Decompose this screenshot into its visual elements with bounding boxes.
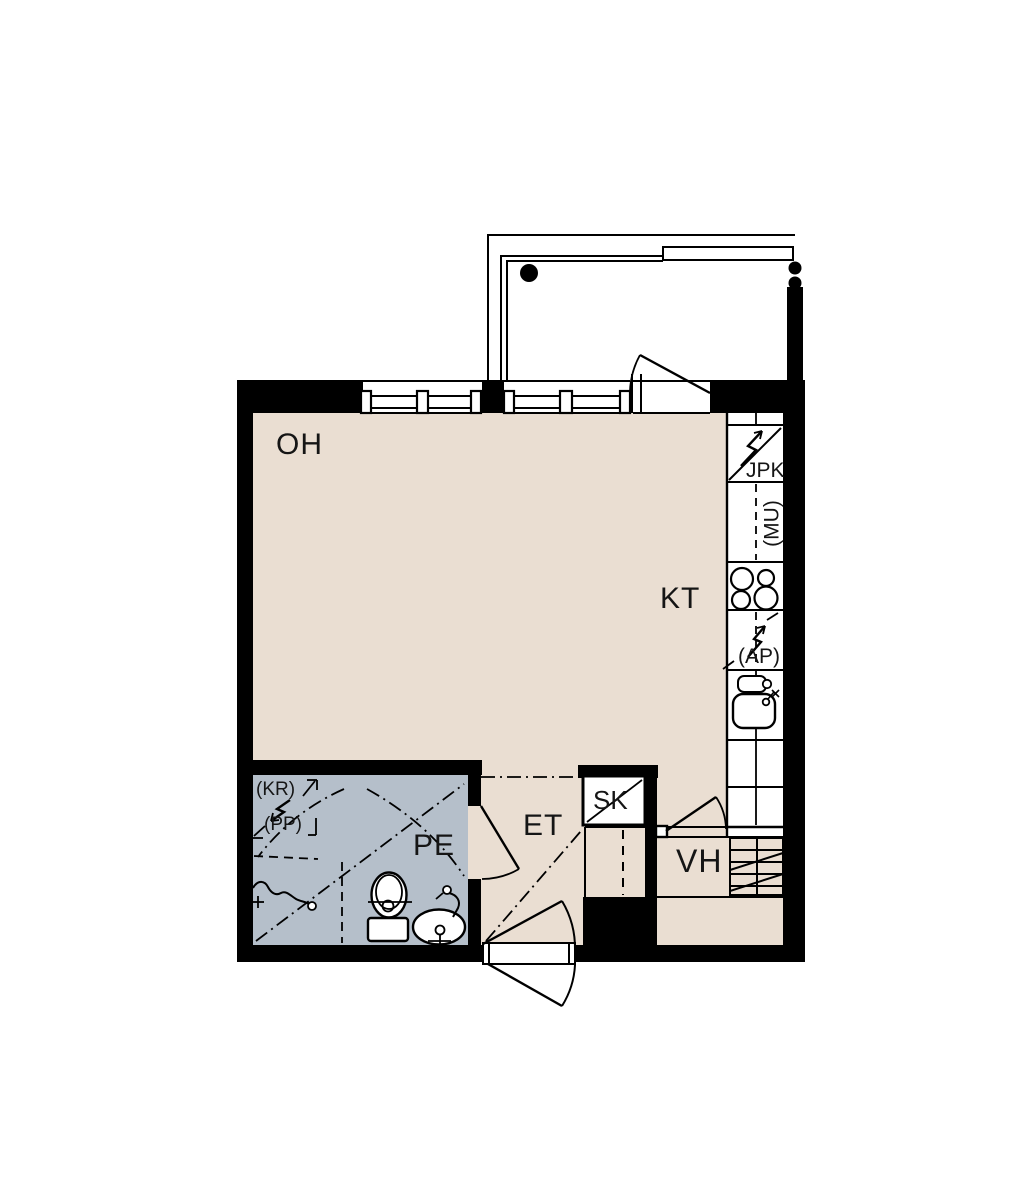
wall-bathroom-right-upper [468,775,481,806]
room-label-bathroom: PE [413,831,455,861]
wall-bottom-right [573,945,805,962]
wall-top-pier-middle [482,380,504,413]
door-leaf [488,964,562,1006]
wall-below-sk [583,897,657,945]
door-swing-arc [562,965,575,1006]
room-label-walk-in-closet: VH [676,845,722,877]
wall-bathroom-top [237,760,482,775]
appliance-label-fridge-freezer: JPK [746,460,785,481]
wall-top-pier-left [237,380,363,413]
appliance-label-dishwasher: (AP) [738,646,780,667]
room-label-living: OH [276,430,323,460]
floor-plan-drawing [0,0,1011,1200]
wall-balcony-side [787,287,803,382]
appliance-label-dryer: (KR) [256,780,295,799]
room-label-cleaning-closet: SK [593,787,628,813]
balcony-post-dot [789,277,802,290]
balcony-door-opening [632,380,710,413]
wall-bathroom-right-lower [468,879,481,945]
balcony-railing-box [663,247,793,260]
threshold [483,943,575,964]
room-label-kitchen: KT [660,584,700,614]
room-label-entry: ET [523,811,563,841]
balcony-column-dot [520,264,538,282]
wall-left [237,380,253,962]
appliance-label-washer: (PP) [264,815,302,834]
floor-plan-page: OH KT PE ET VH SK JPK (MU) (AP) (KR) (PP… [0,0,1011,1200]
appliance-label-microwave: (MU) [762,494,783,554]
balcony-post-dot [789,262,802,275]
window-band [361,355,710,413]
door-hinge-post [656,826,667,837]
wall-bottom-left [237,945,483,962]
door-swing-outside [488,964,575,1006]
wall-right [783,380,805,962]
